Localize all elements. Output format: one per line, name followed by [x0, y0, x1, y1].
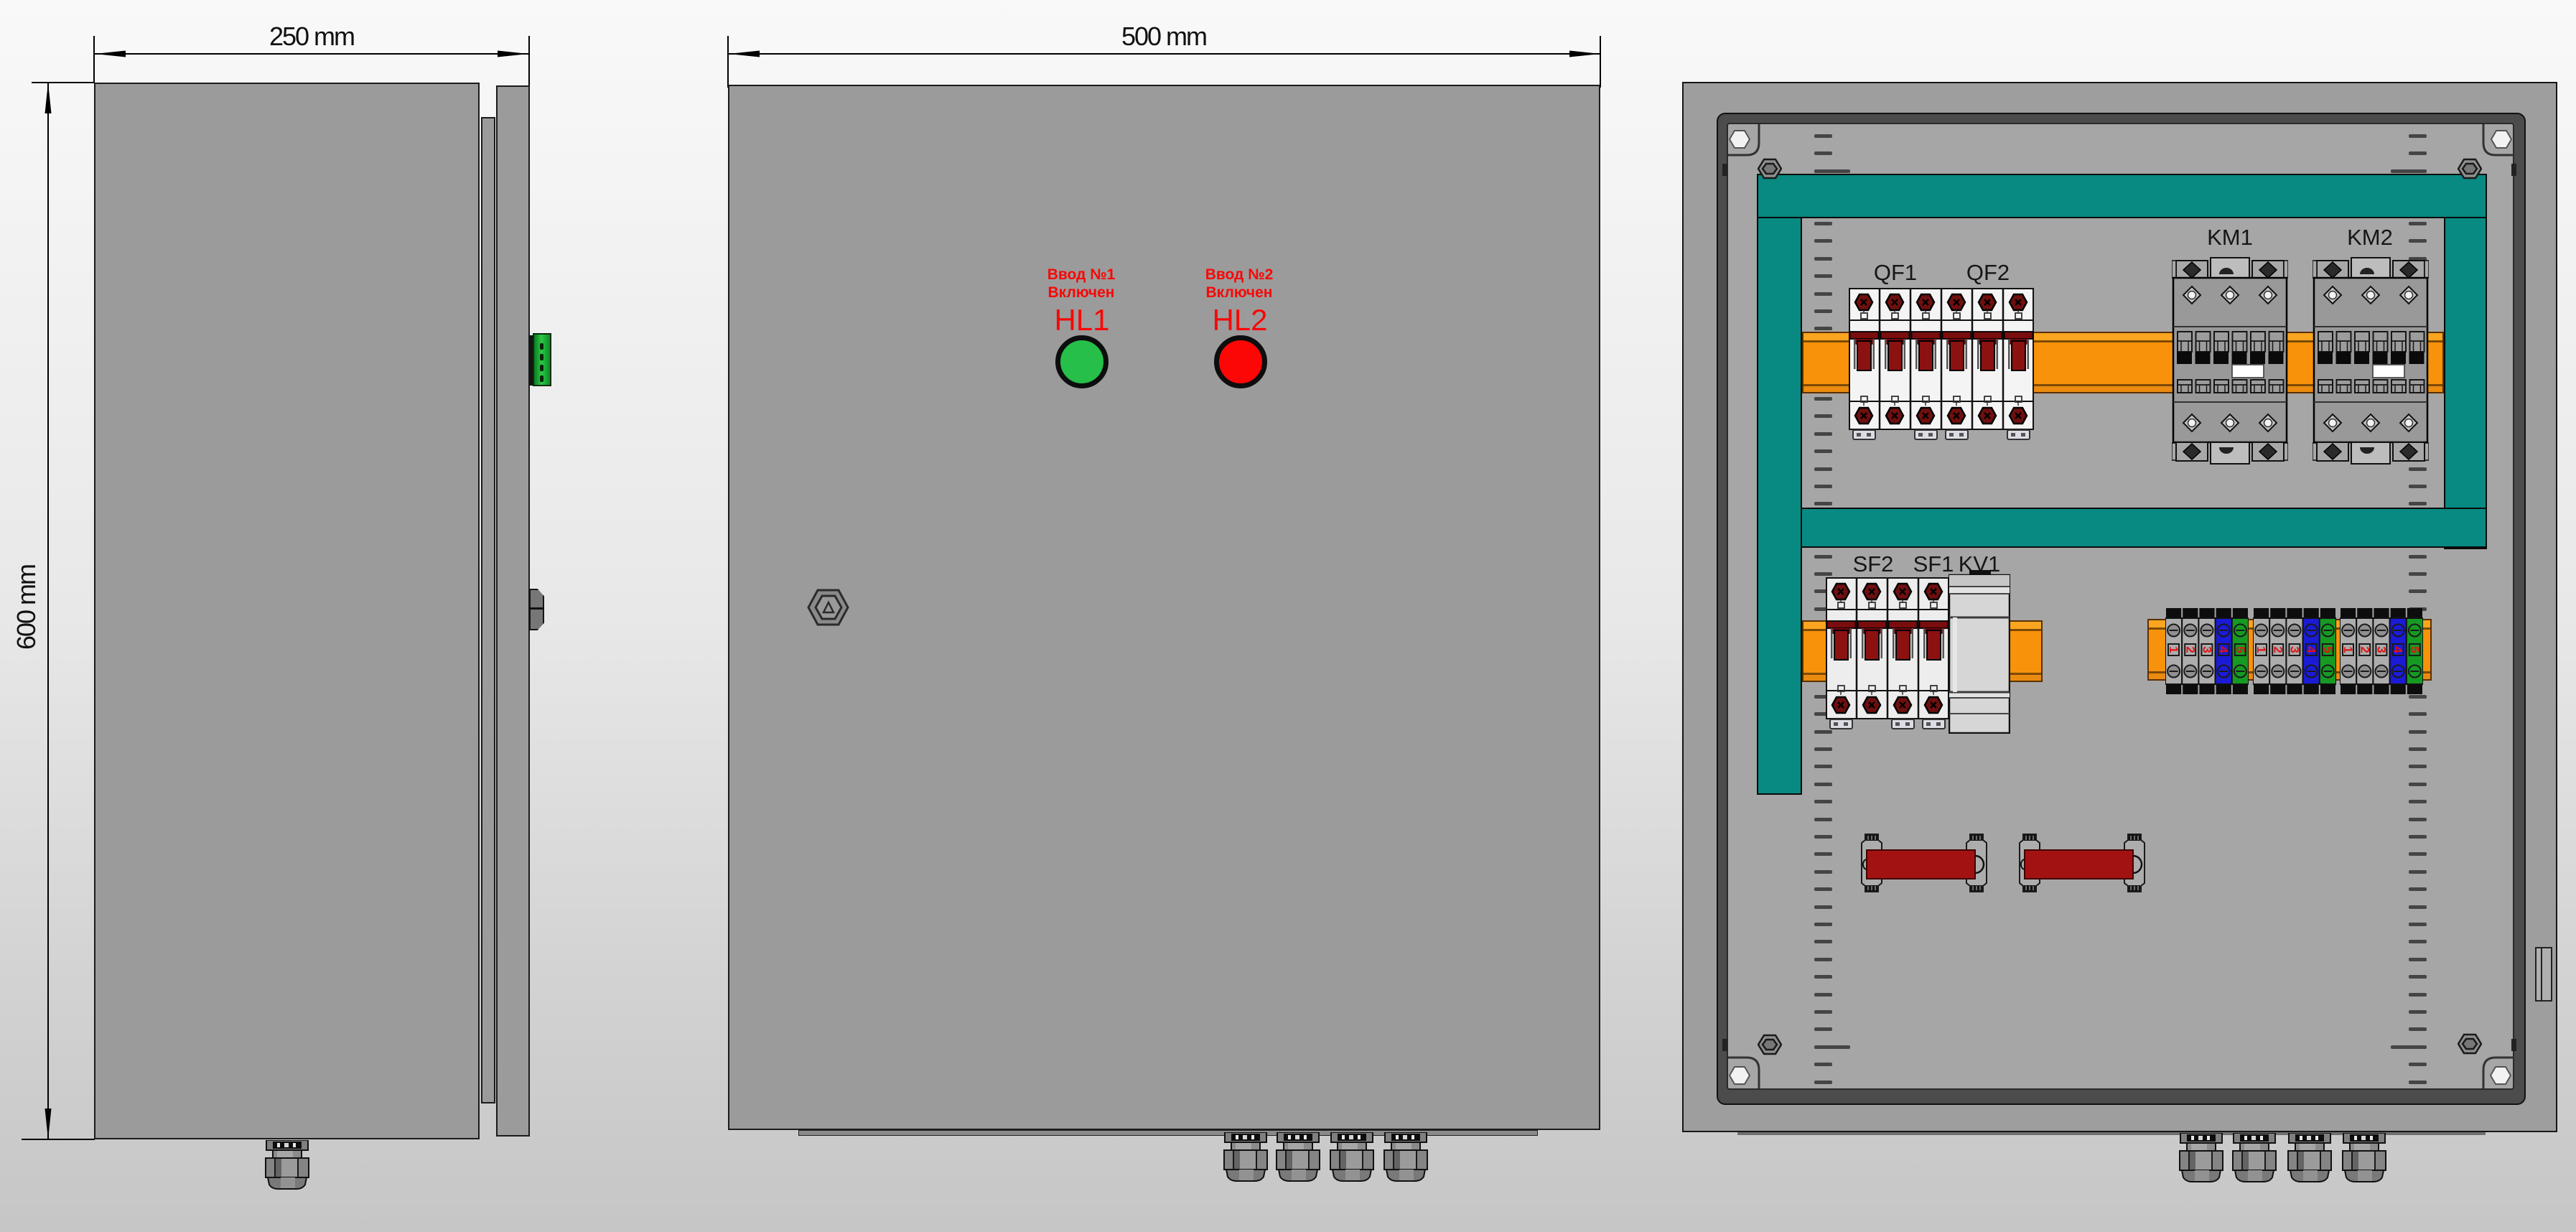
svg-text:2: 2	[2271, 646, 2285, 653]
svg-text:2: 2	[2358, 646, 2371, 653]
svg-text:4: 4	[2217, 646, 2231, 653]
svg-text:3: 3	[2201, 646, 2214, 653]
svg-text:5: 5	[2408, 646, 2422, 653]
svg-text:3: 3	[2375, 646, 2389, 653]
svg-text:1: 1	[2341, 646, 2355, 653]
svg-text:2: 2	[2183, 646, 2197, 653]
svg-text:5: 5	[2234, 646, 2247, 653]
svg-text:4: 4	[2391, 646, 2405, 653]
svg-text:1: 1	[2254, 646, 2268, 653]
svg-text:3: 3	[2288, 646, 2302, 653]
svg-text:4: 4	[2305, 646, 2318, 653]
svg-text:1: 1	[2167, 646, 2180, 653]
svg-text:5: 5	[2321, 646, 2335, 653]
